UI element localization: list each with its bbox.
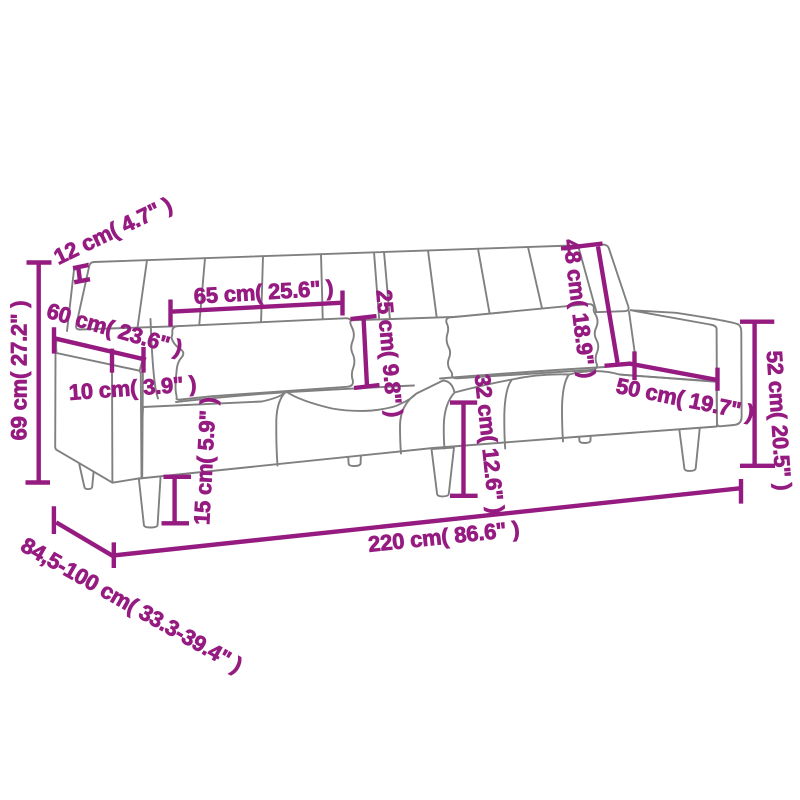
svg-text:69 cm( 27.2" ): 69 cm( 27.2" ) <box>7 301 32 441</box>
